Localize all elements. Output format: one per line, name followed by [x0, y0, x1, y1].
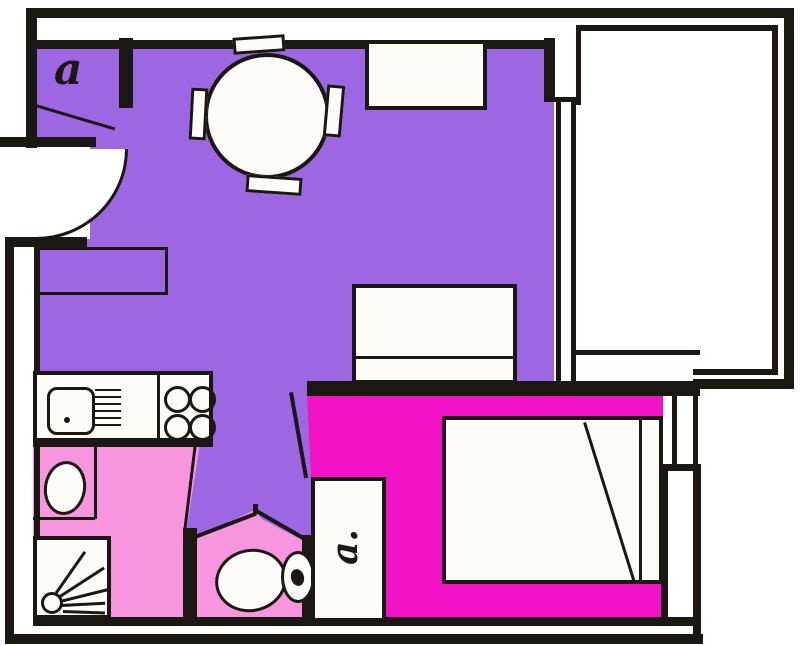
wall-balcony-bottom-outer — [693, 379, 794, 389]
window-living-balcony-line1 — [556, 100, 561, 383]
shower — [33, 536, 111, 619]
chair-top — [232, 34, 285, 55]
stove-burner-2 — [189, 386, 216, 413]
wall-entry-cap-top — [0, 137, 96, 147]
chair-left — [189, 88, 209, 141]
bed-fold-diagonal — [583, 422, 636, 583]
stove-burner-4 — [189, 414, 216, 441]
living-shelf-outline — [36, 247, 168, 295]
sofa — [352, 284, 517, 384]
drainer-hatching — [95, 389, 121, 431]
balcony-step-line — [573, 350, 700, 355]
wall-left-upper — [26, 8, 37, 148]
wall-living-right — [544, 38, 555, 102]
stove-burner-1 — [164, 386, 191, 413]
stove-burner-3 — [164, 414, 191, 441]
sink-drain-dot — [64, 417, 70, 423]
cupboard-label: a. — [327, 529, 363, 565]
sideboard — [365, 40, 487, 110]
wall-bottom-outer — [5, 634, 703, 644]
shower-ray-5 — [63, 610, 105, 614]
wall-bathroom-divider — [183, 528, 197, 620]
floor-plan: a. a — [0, 0, 800, 645]
shower-ray-4 — [61, 602, 105, 607]
kitchen-sink — [47, 387, 95, 435]
dining-table — [204, 53, 330, 179]
sofa-seat-line — [356, 356, 513, 359]
wall-left-outer — [5, 237, 14, 644]
wall-entry-cap-bottom — [5, 237, 87, 247]
wall-top-outer — [26, 8, 793, 18]
basin-partition-h — [33, 517, 95, 520]
balcony-rail-top — [576, 25, 778, 31]
wall-entry-partition — [119, 38, 133, 108]
bed — [442, 416, 663, 584]
cupboard: a. — [311, 477, 386, 622]
wall-bedroom-right-outer — [693, 468, 701, 640]
balcony-rail-right — [772, 25, 778, 375]
wall-balcony-right-outer — [784, 8, 794, 389]
basin-partition-v — [94, 447, 97, 519]
window-living-balcony-line2 — [571, 100, 576, 383]
balcony-rail-bottom — [693, 369, 778, 375]
bed-line-vertical — [639, 420, 642, 580]
window-bedroom-line1 — [672, 396, 677, 466]
hall-fixture-label: a — [54, 48, 83, 92]
balcony-rail-left — [576, 25, 581, 105]
window-bedroom-line2 — [693, 396, 698, 466]
kitchen-counter — [33, 371, 213, 447]
counter-divider-line — [157, 375, 160, 438]
chair-bottom — [245, 174, 302, 196]
